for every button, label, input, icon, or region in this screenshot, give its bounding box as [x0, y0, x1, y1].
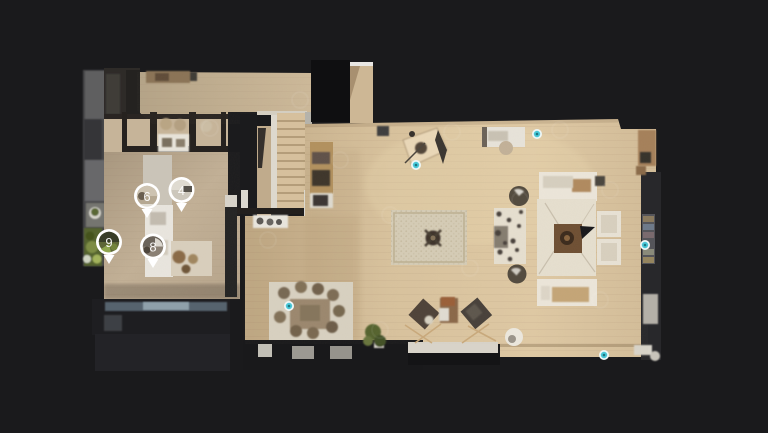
svg-text:6: 6	[143, 189, 150, 204]
svg-text:9: 9	[105, 235, 112, 250]
svg-text:4: 4	[178, 183, 185, 198]
svg-text:8: 8	[149, 240, 156, 255]
